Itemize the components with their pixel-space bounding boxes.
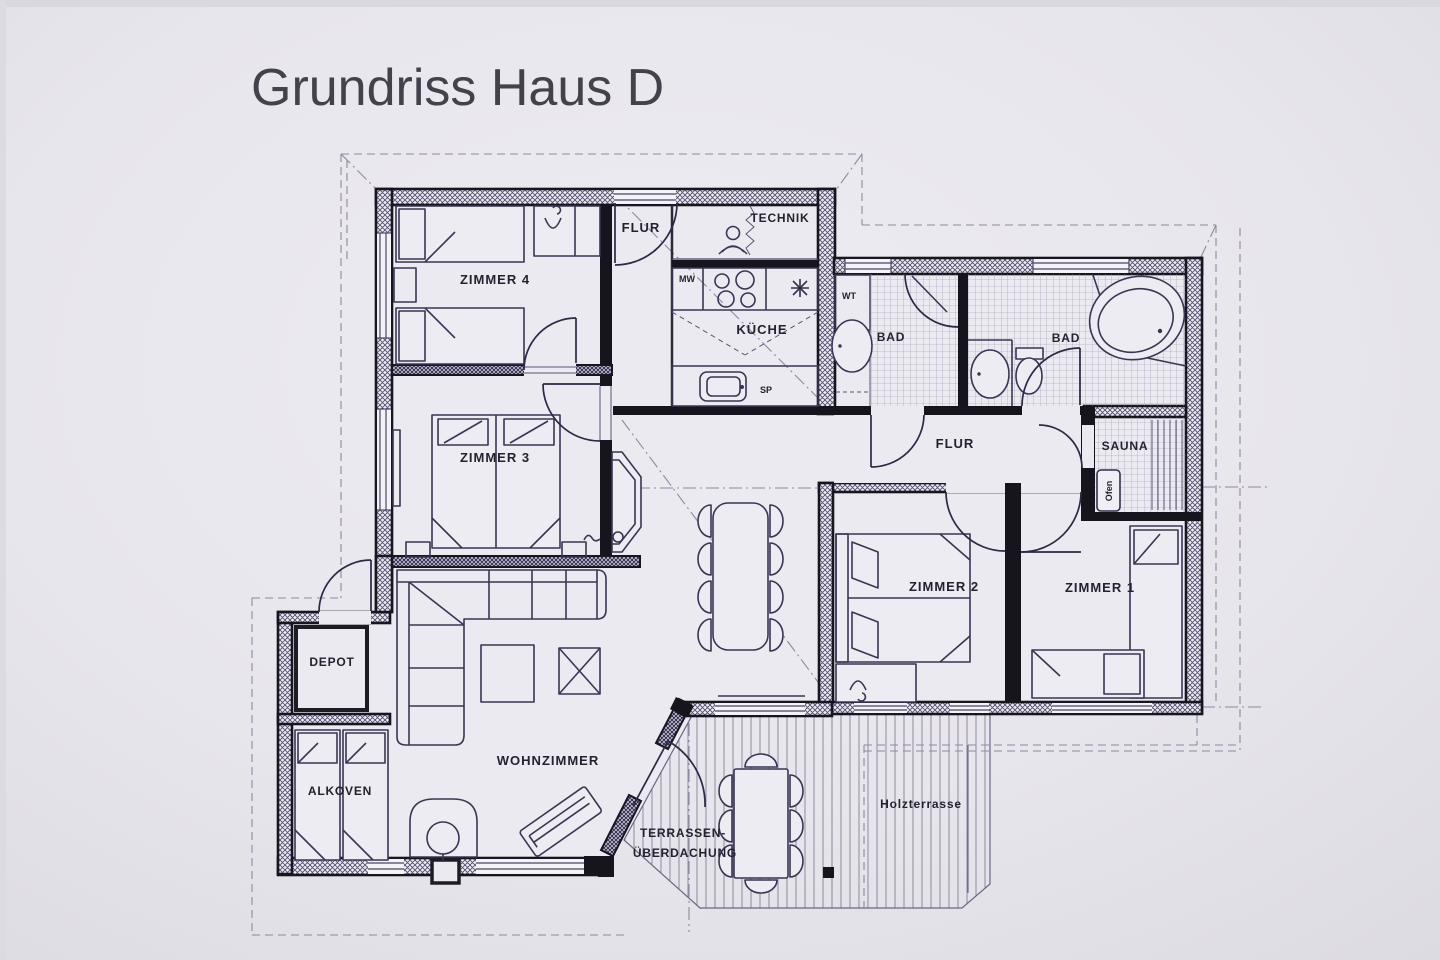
svg-text:SAUNA: SAUNA bbox=[1102, 439, 1149, 453]
svg-text:Ofen: Ofen bbox=[1104, 481, 1114, 502]
svg-text:MW: MW bbox=[679, 274, 695, 284]
svg-text:ÜBERDACHUNG: ÜBERDACHUNG bbox=[633, 845, 737, 860]
svg-text:BAD: BAD bbox=[877, 330, 905, 344]
svg-text:ZIMMER 2: ZIMMER 2 bbox=[909, 579, 979, 594]
svg-text:TECHNIK: TECHNIK bbox=[751, 211, 810, 225]
svg-text:ALKOVEN: ALKOVEN bbox=[308, 784, 372, 798]
svg-text:KÜCHE: KÜCHE bbox=[736, 322, 787, 337]
svg-text:DEPOT: DEPOT bbox=[309, 655, 354, 669]
svg-text:WOHNZIMMER: WOHNZIMMER bbox=[497, 753, 599, 768]
svg-text:FLUR: FLUR bbox=[622, 220, 661, 235]
svg-text:FLUR: FLUR bbox=[936, 436, 975, 451]
svg-text:SP: SP bbox=[760, 385, 772, 395]
svg-text:WT: WT bbox=[842, 291, 856, 301]
svg-text:Holzterrasse: Holzterrasse bbox=[880, 797, 962, 811]
svg-text:TERRASSEN-: TERRASSEN- bbox=[640, 826, 726, 840]
svg-text:ZIMMER 3: ZIMMER 3 bbox=[460, 450, 530, 465]
svg-text:ZIMMER 1: ZIMMER 1 bbox=[1065, 580, 1135, 595]
svg-text:BAD: BAD bbox=[1052, 331, 1080, 345]
svg-text:ZIMMER 4: ZIMMER 4 bbox=[460, 272, 530, 287]
svg-text:Grundriss Haus D: Grundriss Haus D bbox=[251, 59, 664, 117]
